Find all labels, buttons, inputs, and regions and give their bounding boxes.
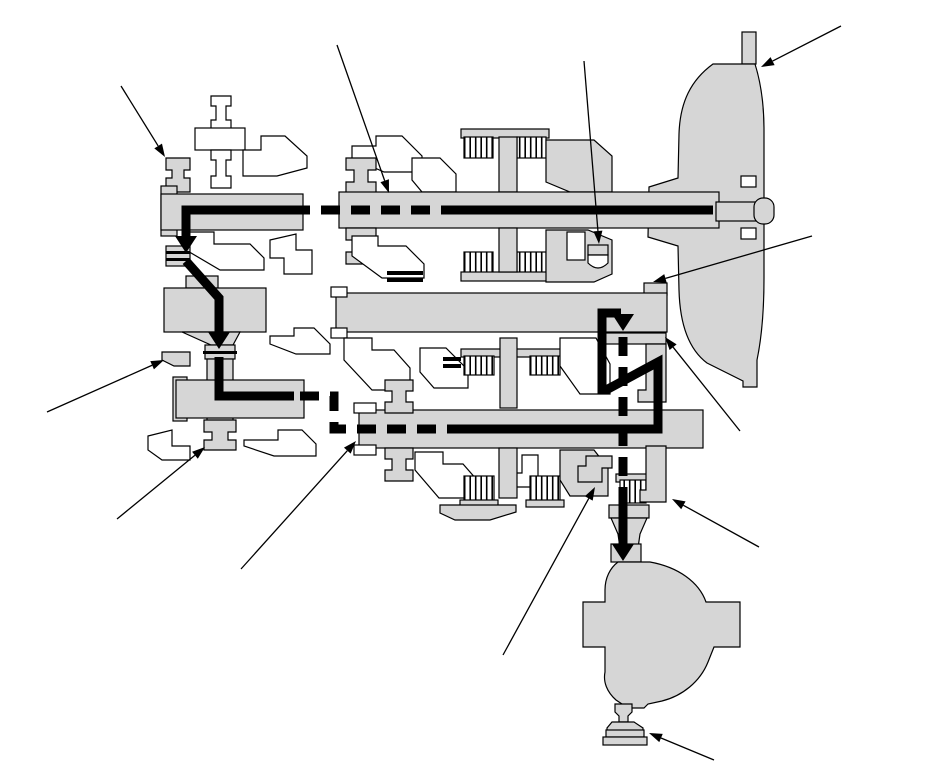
machine-outline (148, 32, 774, 745)
left-hook-top (243, 136, 307, 176)
clutch-drum (499, 137, 517, 192)
callout-arrowhead-intermediate-shaft-end (653, 274, 667, 283)
clutch-pack (517, 252, 546, 273)
brake-band (387, 271, 423, 275)
top-spacer (211, 150, 231, 188)
clutch-pack (530, 356, 560, 375)
callout-arrowhead-idler-bracket (150, 360, 164, 369)
callout-arrowhead-final-drive-pinion (672, 499, 686, 509)
callout-line-torque-converter (773, 26, 841, 61)
callout-arrowhead-transfer-hub (192, 447, 205, 459)
clutch-pack (464, 356, 494, 375)
race-spacer (567, 232, 585, 260)
output-flange-lower (603, 737, 647, 745)
clutch-drum (500, 338, 517, 408)
callout-line-final-drive-pinion (683, 505, 759, 547)
left-hook-low (270, 328, 330, 354)
brake-band (387, 278, 423, 282)
callout-arrowhead-torque-converter (761, 57, 775, 67)
clutch-pack (464, 476, 494, 501)
callout-line-clutch-hub (503, 498, 589, 655)
clutch-pack (530, 476, 560, 501)
callout-line-output-flange (661, 738, 714, 760)
left-hook-mid (186, 232, 264, 270)
callout-line-counter-shaft (241, 451, 347, 569)
drive-gear (602, 333, 666, 344)
diagram-canvas (0, 0, 950, 783)
differential-housing (583, 562, 740, 708)
tc-stud (742, 32, 756, 64)
clutch-drum-right (546, 140, 612, 192)
transfer-hub (204, 420, 236, 450)
clutch-plate-bottom (526, 500, 564, 507)
left-hook-bottom (244, 430, 316, 456)
thrust-bearing-cup (588, 255, 608, 268)
left-bracket-bottom (148, 430, 190, 460)
tc-cavity-upper (741, 176, 756, 187)
brake-band (443, 357, 461, 361)
input-shaft-nub (754, 198, 774, 224)
clutch-drum (499, 448, 517, 498)
tc-cavity-lower (741, 228, 756, 239)
coupling-spline (166, 258, 190, 261)
counter-gear-lower (385, 448, 413, 481)
shaft-cap (354, 445, 376, 455)
callout-arrowhead-drive-gear (665, 337, 677, 350)
callout-arrowhead-input-shaft (380, 179, 389, 193)
callout-arrowhead-output-flange (649, 733, 663, 742)
coupling-spline (203, 351, 237, 354)
clutch-plate-bottom (461, 272, 549, 281)
top-bolt (211, 96, 231, 130)
callout-line-transfer-hub (117, 455, 195, 519)
input-gear-upper (346, 158, 376, 194)
shaft-cap (354, 403, 376, 413)
clutch-pack (464, 137, 493, 158)
callout-line-front-end-cover (121, 86, 158, 146)
output-flange-upper (606, 730, 644, 737)
transaxle-diagram (0, 0, 950, 783)
thrust-bearing (588, 245, 608, 255)
clutch-hook (412, 158, 456, 192)
left-hook-mid2 (270, 234, 312, 274)
shaft-cap (331, 287, 347, 297)
diff-stem (615, 704, 632, 722)
diff-coupling (609, 505, 649, 518)
brake-band (443, 364, 461, 368)
callout-arrowhead-front-end-cover (154, 144, 165, 157)
clutch-drum (499, 228, 517, 272)
idler-bracket (162, 352, 190, 366)
case-rib (440, 505, 516, 520)
shaft-cap (331, 328, 347, 338)
clutch-pack (464, 252, 493, 273)
counter-gear-upper (385, 380, 413, 413)
clutch-pack (517, 137, 546, 158)
top-cap-plate (195, 128, 245, 150)
callout-line-idler-bracket (47, 365, 152, 412)
